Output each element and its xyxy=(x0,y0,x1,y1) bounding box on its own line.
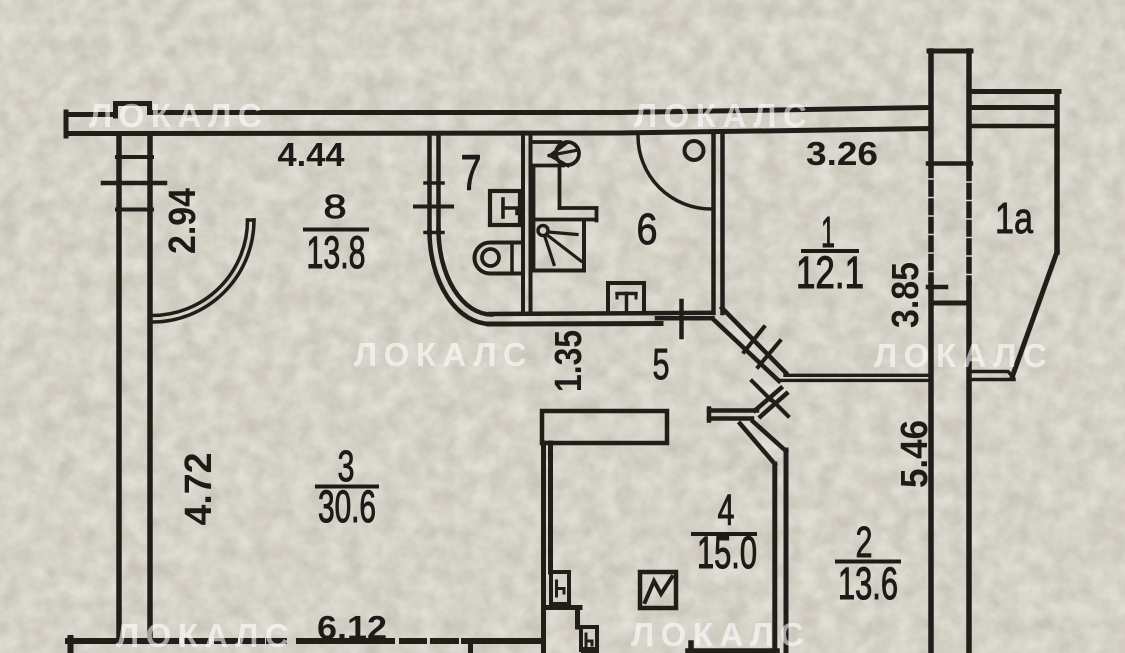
svg-text:12.1: 12.1 xyxy=(796,247,864,298)
svg-text:ЛОКАЛС: ЛОКАЛС xyxy=(116,617,295,653)
svg-text:ЛОКАЛС: ЛОКАЛС xyxy=(874,337,1053,374)
svg-text:4.72: 4.72 xyxy=(178,453,220,526)
svg-text:6: 6 xyxy=(637,205,658,254)
svg-text:ЛОКАЛС: ЛОКАЛС xyxy=(89,97,268,134)
svg-text:2.94: 2.94 xyxy=(162,188,204,254)
svg-text:15.0: 15.0 xyxy=(697,527,757,578)
svg-text:1a: 1a xyxy=(995,194,1033,243)
svg-text:3.26: 3.26 xyxy=(806,135,878,172)
svg-text:13.8: 13.8 xyxy=(307,227,366,278)
svg-text:5.46: 5.46 xyxy=(894,420,936,488)
svg-text:5: 5 xyxy=(653,340,670,389)
svg-text:3.85: 3.85 xyxy=(885,262,927,328)
svg-text:ЛОКАЛС: ЛОКАЛС xyxy=(354,336,533,373)
svg-text:13.6: 13.6 xyxy=(838,558,898,609)
svg-text:ЛОКАЛС: ЛОКАЛС xyxy=(631,616,810,653)
svg-text:4.44: 4.44 xyxy=(278,136,346,173)
svg-text:ЛОКАЛС: ЛОКАЛС xyxy=(634,97,813,134)
svg-text:7: 7 xyxy=(461,145,482,201)
svg-text:8: 8 xyxy=(324,188,347,225)
svg-text:30.6: 30.6 xyxy=(318,481,376,532)
svg-text:1.35: 1.35 xyxy=(548,330,590,392)
svg-text:6.12: 6.12 xyxy=(317,609,387,646)
